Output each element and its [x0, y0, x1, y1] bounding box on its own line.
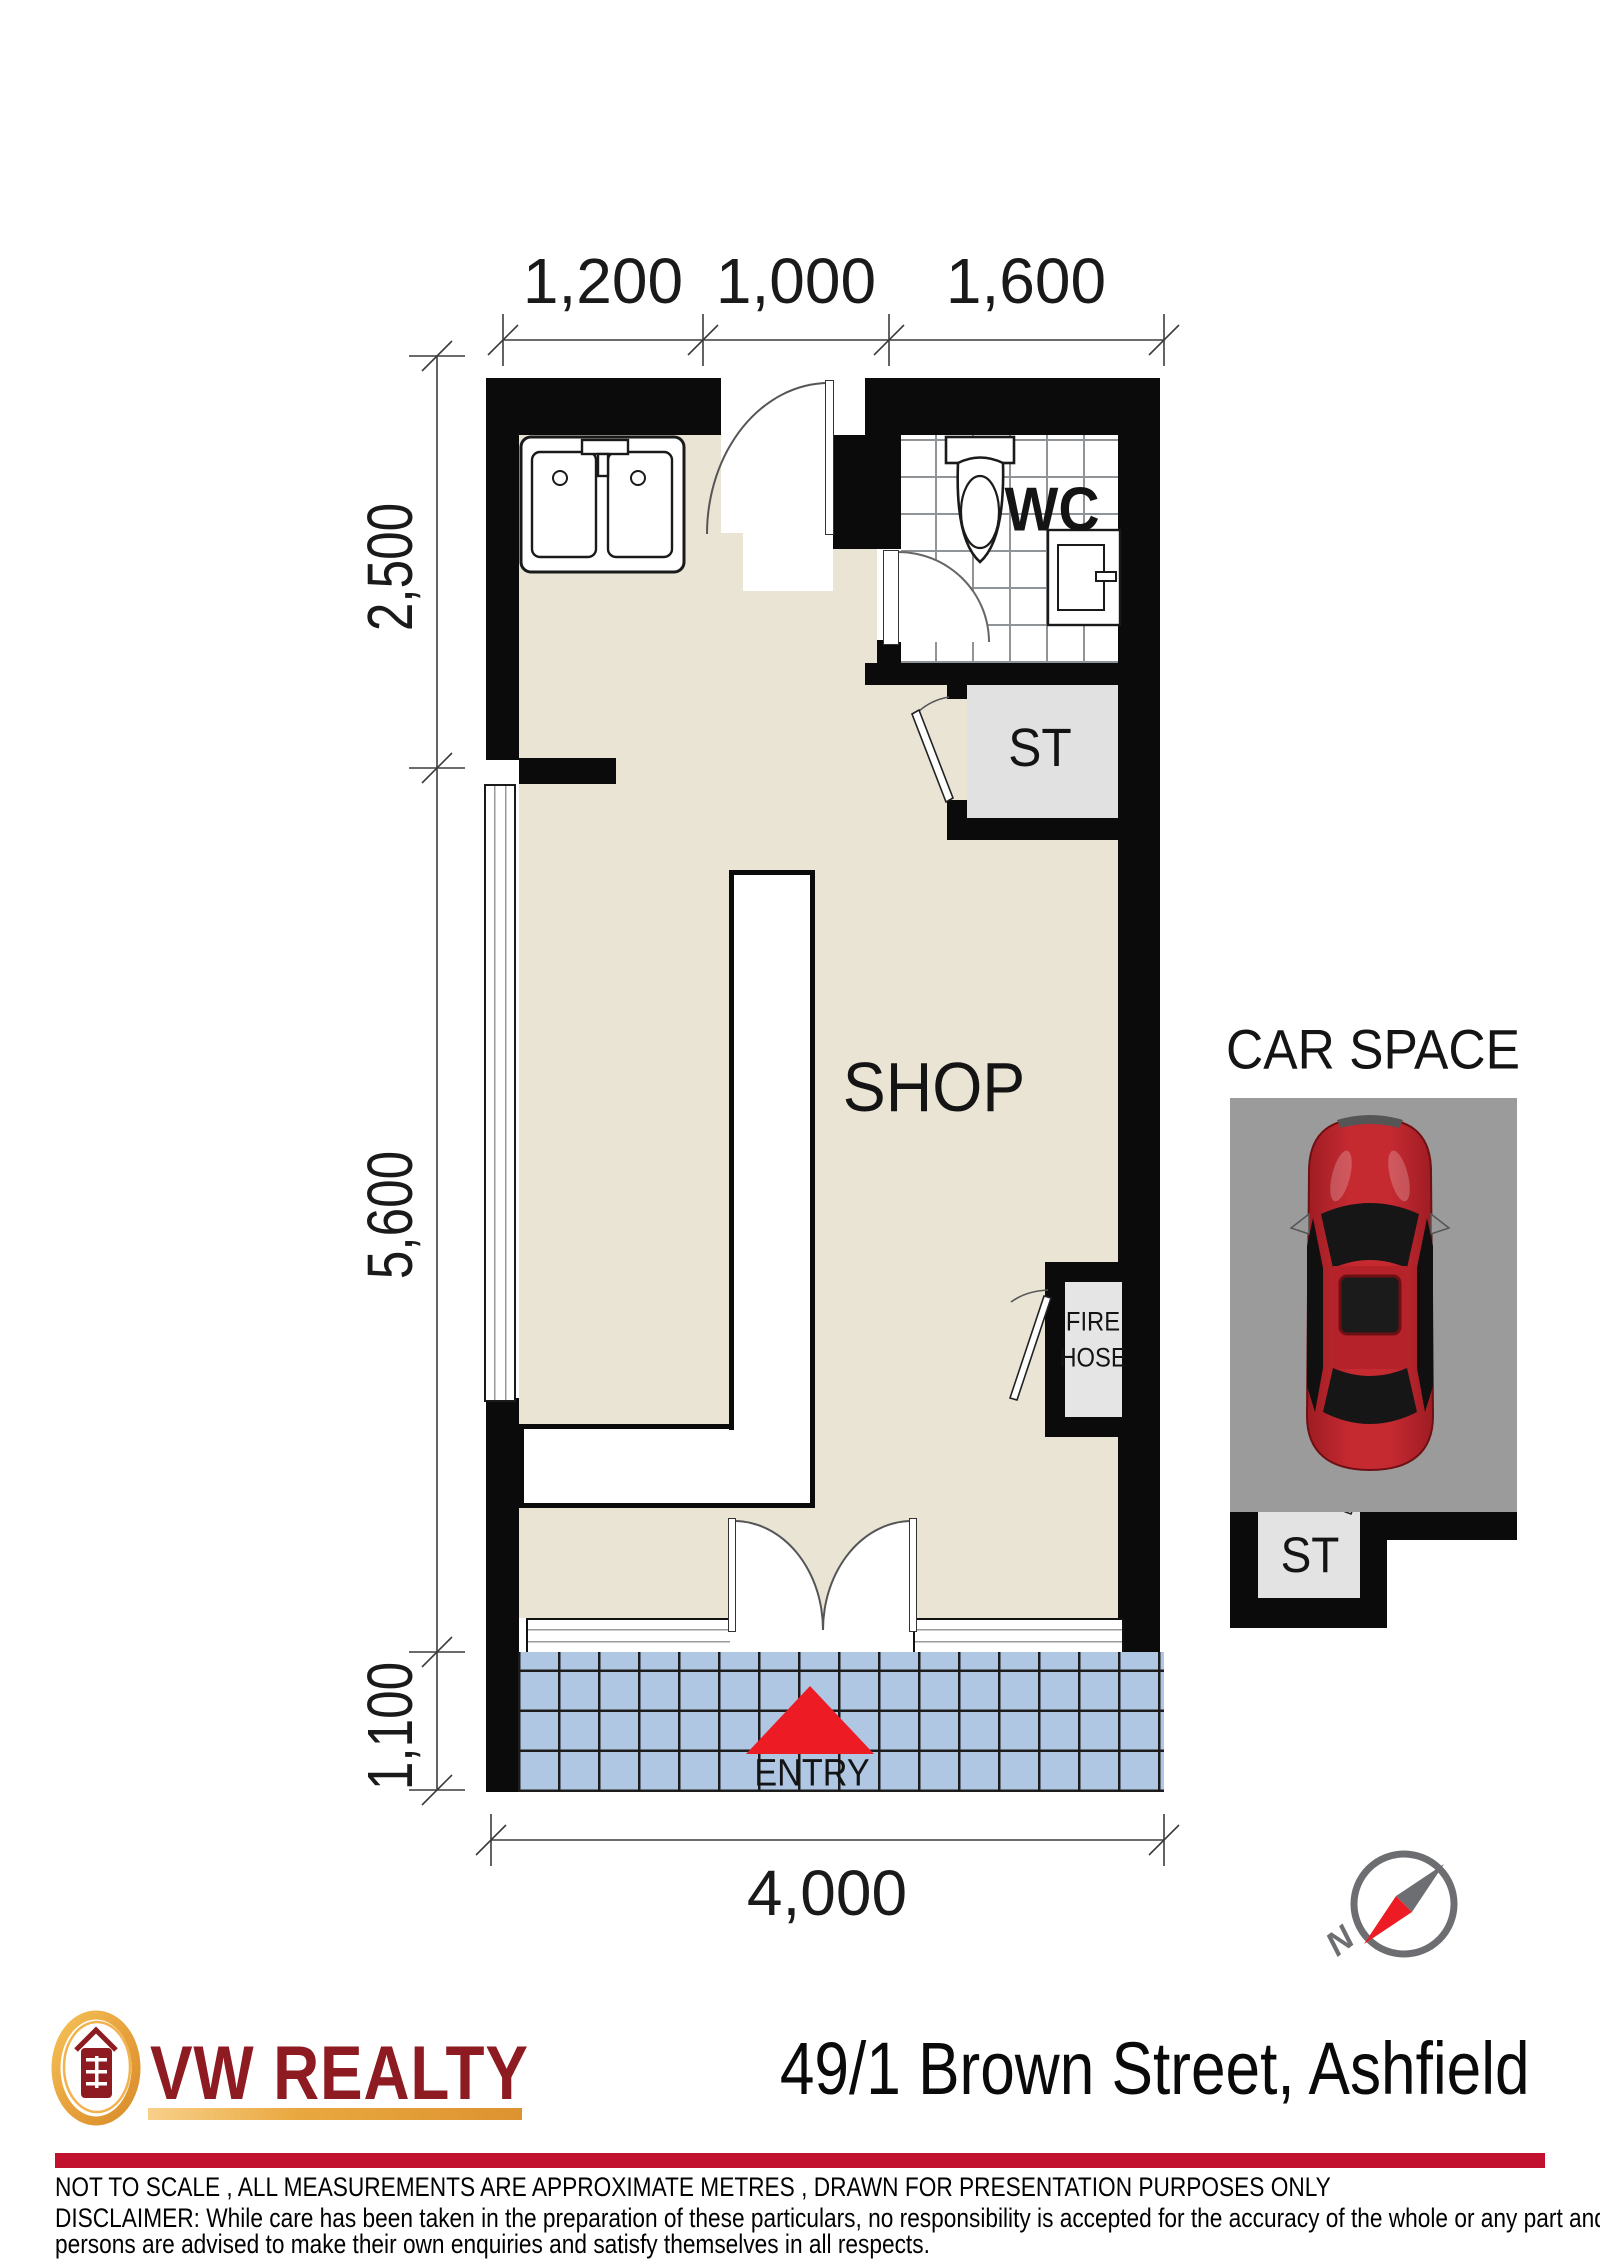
branding-bar: VW REALTY 49/1 Brown Street, Ashfield [0, 1990, 1600, 2160]
shop-label: SHOP [843, 1047, 1026, 1127]
dim-left-1: 2,500 [353, 495, 427, 639]
entry-arrow [746, 1686, 874, 1754]
agency-logo-icon [50, 2008, 144, 2130]
wc-label: WC [1004, 475, 1099, 546]
dim-left-2: 5,600 [353, 1143, 427, 1287]
fire-hose-door [1010, 1290, 1051, 1400]
dim-bottom: 4,000 [747, 1856, 907, 1930]
st-door [912, 697, 953, 802]
footer-note: NOT TO SCALE , ALL MEASUREMENTS ARE APPR… [55, 2172, 1331, 2203]
st-label: ST [1008, 717, 1071, 779]
dim-top-3: 1,600 [946, 244, 1106, 318]
dim-top-2: 1,000 [716, 244, 876, 318]
sink-icon [521, 437, 684, 572]
fire-hose-label-line1: FIRE [1066, 1307, 1120, 1338]
fire-hose-label-line2: HOSE [1059, 1343, 1126, 1374]
property-address: 49/1 Brown Street, Ashfield [780, 2026, 1530, 2111]
footer-red-bar [55, 2153, 1545, 2168]
agency-underline [148, 2108, 522, 2120]
floor-plan-page: 1,200 1,000 1,600 2,500 5,600 1,100 4,00… [0, 0, 1600, 2264]
dim-left-3: 1,100 [353, 1654, 427, 1798]
compass-icon [1330, 1830, 1490, 1990]
compass: N [1330, 1830, 1490, 1990]
entry-label: ENTRY [754, 1753, 869, 1796]
dim-top-1: 1,200 [523, 244, 683, 318]
footer: NOT TO SCALE , ALL MEASUREMENTS ARE APPR… [0, 2140, 1600, 2264]
car-space-st-label: ST [1281, 1526, 1340, 1584]
car-top-view-icon [1283, 1106, 1457, 1486]
car-space-title: CAR SPACE [1226, 1017, 1520, 1082]
footer-disclaimer-line2: persons are advised to make their own en… [55, 2229, 930, 2260]
agency-name: VW REALTY [150, 2030, 529, 2117]
